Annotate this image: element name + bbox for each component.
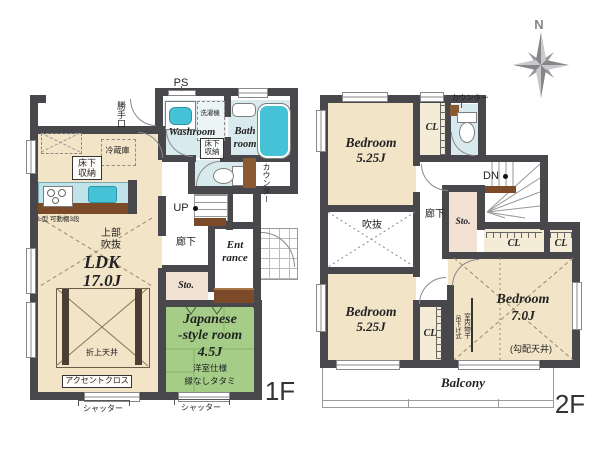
stairs-up bbox=[194, 194, 228, 221]
wall bbox=[320, 267, 418, 274]
wall bbox=[478, 155, 548, 162]
label-washer: 洗濯機 bbox=[197, 110, 223, 117]
window bbox=[26, 140, 36, 174]
floor-plan: PS 勝手口 冷蔵庫 床下収納 Washroom 洗濯機 床下収納 Bath r… bbox=[0, 0, 600, 471]
washroom-sink bbox=[169, 107, 192, 125]
wall bbox=[188, 186, 248, 194]
wall bbox=[30, 95, 46, 103]
label-jp-room-note2: 縁なしタタミ bbox=[176, 377, 244, 387]
ps-slot bbox=[168, 90, 196, 96]
wall bbox=[441, 300, 448, 368]
dn-dot bbox=[503, 174, 508, 179]
wall bbox=[162, 265, 210, 272]
label-bedroom2-name: Bedroom bbox=[338, 304, 404, 319]
wall bbox=[477, 222, 580, 229]
wall bbox=[290, 88, 298, 192]
label-jp-room-size: 4.5J bbox=[167, 345, 253, 361]
door-arc bbox=[419, 277, 446, 304]
window bbox=[26, 248, 36, 294]
label-back-door: 勝手口 bbox=[116, 97, 125, 131]
label-washroom: Washroom bbox=[162, 127, 222, 139]
balcony-rail bbox=[322, 399, 554, 408]
wall bbox=[158, 268, 166, 400]
genkan-step bbox=[214, 288, 254, 303]
window bbox=[572, 282, 582, 330]
label-bedroom3-size: 7.0J bbox=[485, 308, 561, 323]
label-counter-2f: カウンター bbox=[448, 94, 492, 102]
label-up: UP bbox=[170, 202, 192, 214]
label-entrance-1: Ent bbox=[214, 239, 256, 251]
label-entrance-2: rance bbox=[214, 252, 256, 264]
label-jp-room-note1: 洋室仕様 bbox=[180, 364, 240, 374]
balcony-tick bbox=[408, 399, 409, 407]
label-cl-mid2: CL bbox=[550, 238, 572, 249]
label-hallway-1f: 廊下 bbox=[172, 237, 200, 248]
stove-burner bbox=[47, 189, 55, 197]
stove-burner bbox=[52, 197, 59, 204]
label-coffered: 折上天井 bbox=[82, 349, 122, 358]
label-dn: DN bbox=[480, 170, 502, 182]
stairs-landing bbox=[194, 218, 226, 226]
window bbox=[316, 284, 326, 332]
label-sto-2f: Sto. bbox=[449, 217, 477, 228]
label-sto-1f: Sto. bbox=[166, 280, 206, 291]
label-hallway-2f: 廊下 bbox=[421, 209, 449, 220]
wall bbox=[224, 95, 231, 117]
label-bedroom3-name: Bedroom bbox=[485, 292, 561, 308]
counter-leader bbox=[461, 103, 462, 108]
stove-burner bbox=[58, 189, 66, 197]
window bbox=[342, 92, 388, 102]
label-ldk-name: LDK bbox=[60, 252, 144, 272]
compass-rose-icon bbox=[503, 30, 579, 100]
label-floor-1f: 1F bbox=[260, 377, 300, 406]
stairs-landing-2f bbox=[485, 186, 516, 193]
window bbox=[458, 360, 540, 370]
label-bath-1: Bath bbox=[228, 126, 262, 138]
label-cl-bottom: CL bbox=[419, 328, 441, 339]
label-underfloor-washroom: 床下収納 bbox=[200, 138, 224, 159]
label-counter-1f: カウンター bbox=[262, 160, 270, 206]
label-shutter-left: シャッター bbox=[81, 405, 125, 414]
label-upper-void-1: 上部 bbox=[95, 228, 127, 239]
drying-pole bbox=[471, 298, 473, 352]
label-drying-2: 吊下げ式 bbox=[454, 310, 460, 344]
door-arc bbox=[421, 164, 448, 191]
label-bedroom3-note: (勾配天井) bbox=[498, 344, 564, 354]
window bbox=[238, 88, 268, 98]
label-bedroom1-size: 5.25J bbox=[338, 151, 404, 166]
label-bedroom2-size: 5.25J bbox=[338, 320, 404, 335]
ceiling-hatch-x bbox=[41, 133, 80, 152]
label-cl-mid1: CL bbox=[503, 238, 525, 249]
label-bath-2: room bbox=[228, 139, 262, 151]
door-arc bbox=[130, 99, 156, 126]
coffered-post bbox=[62, 289, 69, 365]
wall bbox=[478, 95, 486, 162]
wall bbox=[447, 285, 454, 368]
wall bbox=[128, 180, 137, 214]
label-jp-room-1: Japanese bbox=[167, 312, 253, 328]
label-ldk-size: 17.0J bbox=[60, 271, 144, 290]
label-ps: PS bbox=[166, 77, 196, 89]
wall bbox=[540, 155, 548, 230]
window bbox=[26, 302, 36, 358]
kitchen-sink bbox=[88, 186, 117, 203]
bathtub bbox=[258, 104, 290, 158]
label-drying-1: 室内物干 bbox=[462, 306, 469, 346]
balcony-tick bbox=[498, 399, 499, 407]
label-balcony: Balcony bbox=[408, 376, 518, 391]
window bbox=[420, 92, 444, 102]
label-upper-void-2: 吹抜 bbox=[95, 240, 127, 251]
wall bbox=[442, 185, 449, 257]
label-jp-room-2: -style room bbox=[167, 328, 253, 344]
window bbox=[336, 360, 400, 370]
bath-bench bbox=[232, 103, 256, 117]
label-void: 吹抜 bbox=[358, 220, 386, 231]
up-dot bbox=[193, 206, 198, 211]
label-fridge: 冷蔵庫 bbox=[101, 147, 134, 156]
wall bbox=[413, 150, 420, 166]
label-shutter-right: シャッター bbox=[177, 404, 225, 413]
label-bedroom1-name: Bedroom bbox=[338, 135, 404, 150]
label-floor-2f: 2F bbox=[548, 390, 592, 419]
coffered-post bbox=[135, 289, 142, 365]
window bbox=[316, 110, 326, 152]
label-shelf: L型 可動棚3段 bbox=[38, 216, 82, 223]
label-cl-top: CL bbox=[421, 122, 443, 133]
wall bbox=[158, 196, 166, 236]
wall bbox=[320, 205, 418, 212]
label-accent: アクセントクロス bbox=[62, 375, 132, 388]
toilet-counter bbox=[243, 158, 256, 188]
label-underfloor-kitchen: 床下収納 bbox=[72, 156, 102, 180]
